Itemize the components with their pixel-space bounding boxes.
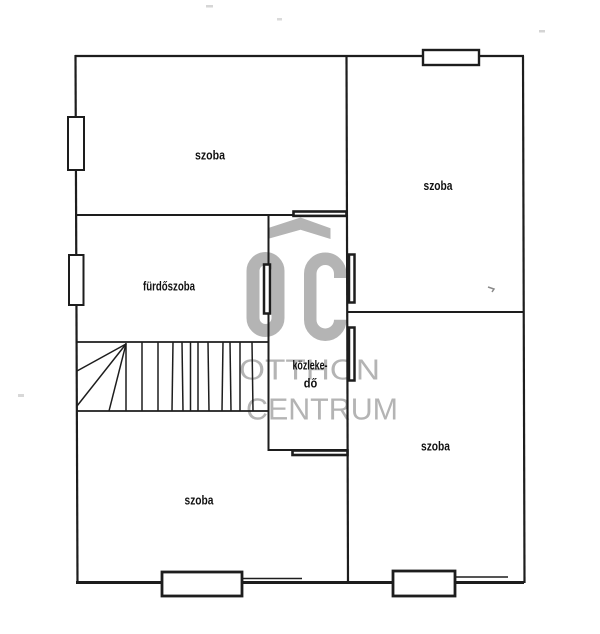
svg-text:szoba: szoba <box>421 440 451 454</box>
svg-text:közleke-: közleke- <box>293 359 328 373</box>
svg-text:szoba: szoba <box>424 179 454 193</box>
svg-text:dő: dő <box>304 377 318 391</box>
svg-text:szoba: szoba <box>195 149 226 163</box>
svg-text:fürdőszoba: fürdőszoba <box>143 280 196 294</box>
svg-text:szoba: szoba <box>185 494 215 508</box>
